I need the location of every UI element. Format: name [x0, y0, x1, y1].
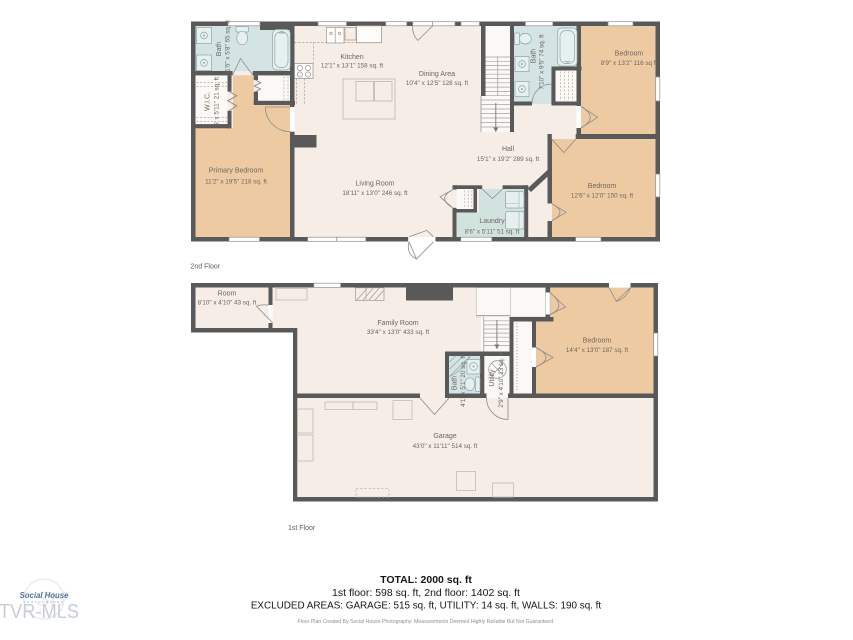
svg-text:Laundry: Laundry [479, 218, 505, 225]
svg-text:8'6" x 5'11" 51 sq. ft: 8'6" x 5'11" 51 sq. ft [465, 229, 520, 236]
svg-text:Bedroom: Bedroom [588, 183, 617, 190]
svg-text:TOTAL: 2000 sq. ft: TOTAL: 2000 sq. ft [380, 574, 472, 586]
svg-text:1st floor: 598 sq. ft, 2nd flo: 1st floor: 598 sq. ft, 2nd floor: 1402 s… [332, 587, 520, 599]
svg-text:EXCLUDED AREAS: GARAGE: 515 sq: EXCLUDED AREAS: GARAGE: 515 sq. ft, UTIL… [251, 601, 602, 612]
svg-text:12'6" x 12'0" 150 sq. ft: 12'6" x 12'0" 150 sq. ft [571, 193, 633, 200]
svg-text:43'0" x 11'11" 514 sq. ft: 43'0" x 11'11" 514 sq. ft [413, 443, 478, 450]
svg-text:18'11" x 13'0" 246 sq. ft: 18'11" x 13'0" 246 sq. ft [342, 190, 407, 197]
svg-text:Bath: Bath [452, 376, 459, 391]
svg-text:W.I.C.: W.I.C. [205, 92, 212, 111]
svg-text:1st Floor: 1st Floor [288, 525, 316, 532]
svg-text:14'4" x 13'0" 187 sq. ft: 14'4" x 13'0" 187 sq. ft [566, 347, 628, 354]
svg-text:12'1" x 13'1" 158 sq. ft: 12'1" x 13'1" 158 sq. ft [321, 63, 383, 70]
svg-text:Utility: Utility [489, 369, 496, 387]
svg-text:Family Room: Family Room [377, 320, 418, 327]
svg-text:Kitchen: Kitchen [340, 54, 363, 61]
svg-text:Floor Plan Created By Social H: Floor Plan Created By Social House Photo… [298, 619, 555, 625]
svg-text:8'9" x 13'2" 116 sq ft: 8'9" x 13'2" 116 sq ft [601, 60, 658, 67]
svg-text:Dining Area: Dining Area [419, 71, 455, 78]
svg-text:6' x 5'11" 21 sq. ft: 6' x 5'11" 21 sq. ft [214, 77, 221, 126]
svg-text:8'10" x 4'10" 43 sq. ft: 8'10" x 4'10" 43 sq. ft [198, 300, 257, 307]
svg-text:Bedroom: Bedroom [583, 338, 612, 345]
svg-text:Bath: Bath [216, 42, 223, 57]
svg-text:Room: Room [218, 291, 237, 298]
svg-text:Bedroom: Bedroom [615, 51, 644, 58]
svg-text:Hall: Hall [502, 146, 515, 153]
svg-text:4'1" x 5'1" 20 sq. ft: 4'1" x 5'1" 20 sq. ft [460, 355, 467, 407]
svg-text:10'4" x 12'5" 128 sq. ft: 10'4" x 12'5" 128 sq. ft [406, 80, 468, 87]
svg-text:Living Room: Living Room [356, 181, 395, 188]
svg-text:11'2" x 19'5" 218 sq. ft: 11'2" x 19'5" 218 sq. ft [205, 179, 267, 186]
svg-text:15'1" x 19'2" 289 sq. ft: 15'1" x 19'2" 289 sq. ft [477, 156, 539, 163]
svg-text:Bath: Bath [531, 49, 538, 64]
svg-text:7'10" x 9'5" 74 sq. ft: 7'10" x 9'5" 74 sq. ft [539, 34, 546, 89]
svg-text:2'9" x 4'10" 13 sq. ft: 2'9" x 4'10" 13 sq. ft [498, 352, 505, 407]
svg-text:Social House: Social House [20, 591, 70, 600]
svg-text:PHOTOGRAPHY: PHOTOGRAPHY [24, 600, 65, 604]
svg-text:Garage: Garage [433, 433, 456, 440]
svg-text:2nd Floor: 2nd Floor [191, 264, 221, 271]
svg-text:11'6" x 5'8" 65 sq. ft: 11'6" x 5'8" 65 sq. ft [225, 20, 232, 75]
svg-text:33'4" x 13'0" 433 sq. ft: 33'4" x 13'0" 433 sq. ft [367, 329, 429, 336]
svg-text:Primary Bedroom: Primary Bedroom [209, 168, 264, 175]
